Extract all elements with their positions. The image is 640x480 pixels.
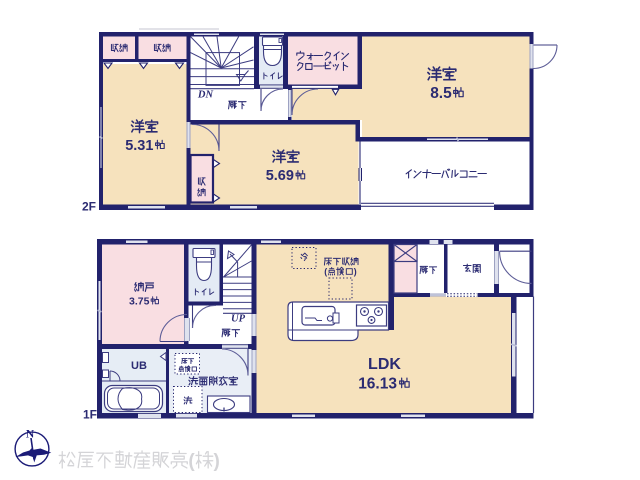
svg-text:LDK: LDK (368, 356, 401, 373)
svg-text:8.5: 8.5 (430, 85, 452, 102)
svg-text:5.31: 5.31 (125, 138, 153, 154)
svg-text:2F: 2F (82, 200, 96, 214)
svg-text:5.69: 5.69 (266, 168, 294, 184)
svg-text:UB: UB (131, 360, 147, 372)
svg-text:): ) (354, 267, 357, 277)
svg-text:1F: 1F (83, 408, 97, 422)
svg-text:(: ( (188, 451, 195, 472)
svg-text:DN: DN (197, 89, 214, 100)
svg-text:): ) (214, 451, 220, 472)
svg-text:UP: UP (231, 314, 246, 325)
svg-text:16.13: 16.13 (358, 376, 397, 393)
svg-text:(: ( (324, 267, 327, 277)
svg-text:3.75: 3.75 (129, 295, 150, 307)
